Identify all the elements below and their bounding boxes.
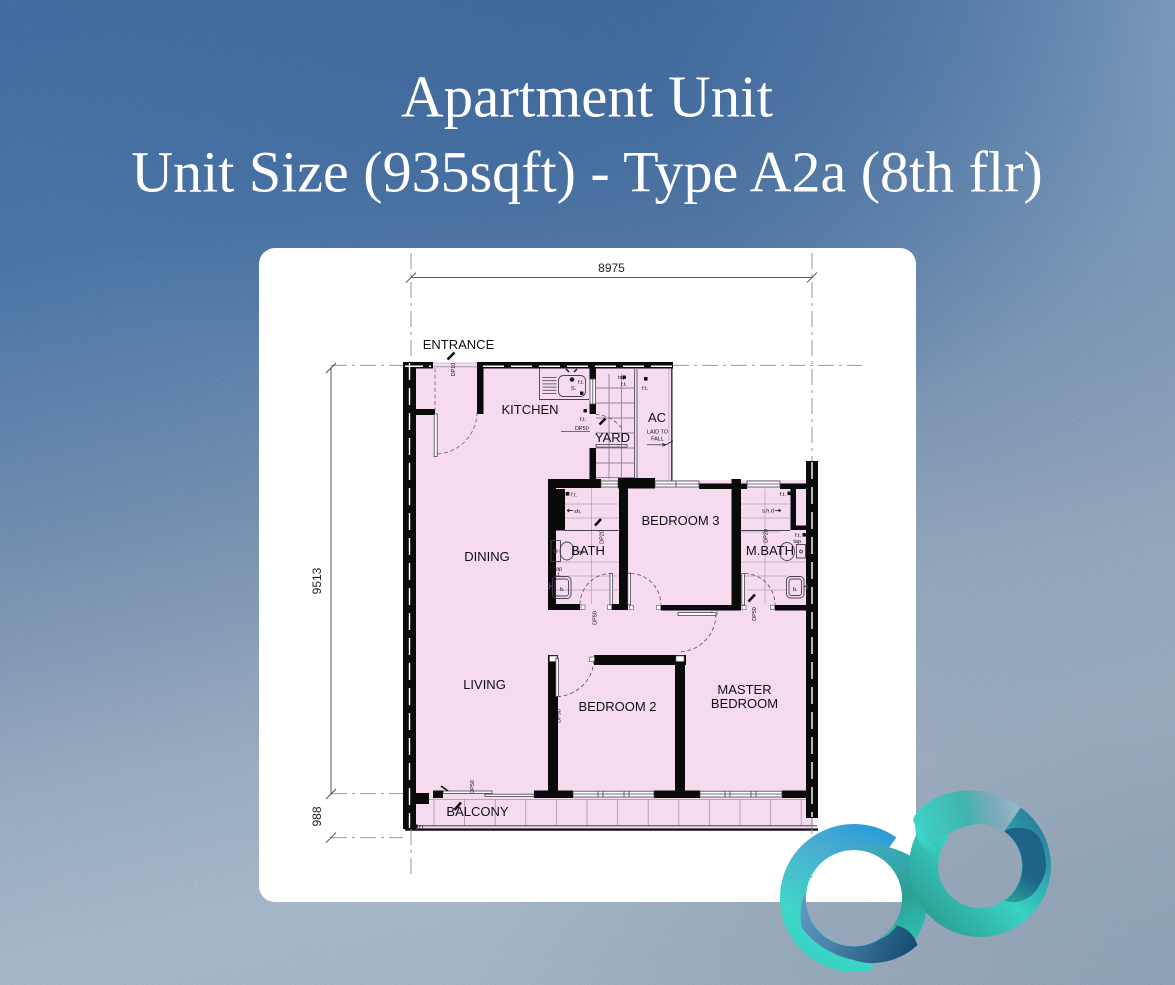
svg-text:f.t.: f.t. [621,382,628,388]
svg-text:DP50: DP50 [470,780,476,794]
svg-text:FALL: FALL [651,437,664,443]
svg-text:DP50: DP50 [575,426,589,432]
svg-text:tap: tap [793,539,801,545]
svg-text:LAID TO: LAID TO [647,430,669,436]
svg-text:DINING: DINING [464,549,510,564]
svg-text:M.BATH: M.BATH [746,543,794,558]
svg-text:BEDROOM 2: BEDROOM 2 [578,699,656,714]
svg-text:S.: S. [571,386,577,392]
svg-text:f.t.: f.t. [419,825,426,831]
svg-text:Apartment Unit: Apartment Unit [401,64,774,130]
svg-text:sh.: sh. [574,509,582,515]
svg-text:DP50: DP50 [593,611,599,625]
svg-text:f.t.: f.t. [780,492,787,498]
svg-text:BEDROOM 3: BEDROOM 3 [641,513,719,528]
svg-text:DP50: DP50 [752,607,758,621]
svg-text:BATH: BATH [571,543,605,558]
svg-text:DP20: DP20 [600,530,606,544]
svg-text:DP20: DP20 [764,529,770,543]
svg-text:BALCONY: BALCONY [446,804,508,819]
svg-text:ENTRANCE: ENTRANCE [423,337,495,352]
svg-text:f.t.: f.t. [642,386,649,392]
svg-text:YARD: YARD [595,430,630,445]
svg-text:f.t.: f.t. [555,572,562,578]
svg-text:LIVING: LIVING [463,677,506,692]
svg-text:Unit Size (935sqft) - Type A2a: Unit Size (935sqft) - Type A2a (8th flr) [131,140,1042,205]
svg-text:BEDROOM: BEDROOM [711,696,778,711]
svg-text:MASTER: MASTER [717,682,771,697]
svg-text:b.: b. [793,587,798,593]
svg-text:9513: 9513 [310,567,324,594]
svg-text:DP50: DP50 [557,709,563,723]
svg-text:8975: 8975 [598,261,625,275]
svg-text:988: 988 [310,806,324,826]
svg-text:KITCHEN: KITCHEN [501,402,558,417]
svg-text:b.: b. [560,587,565,593]
svg-text:DP10: DP10 [451,363,457,377]
svg-text:f.t.: f.t. [571,493,578,499]
svg-text:s.h.d: s.h.d [762,509,774,515]
svg-text:tap: tap [618,375,626,381]
svg-text:f.t.: f.t. [580,417,587,423]
svg-text:AC: AC [648,410,666,425]
svg-text:f.t.: f.t. [578,380,585,386]
